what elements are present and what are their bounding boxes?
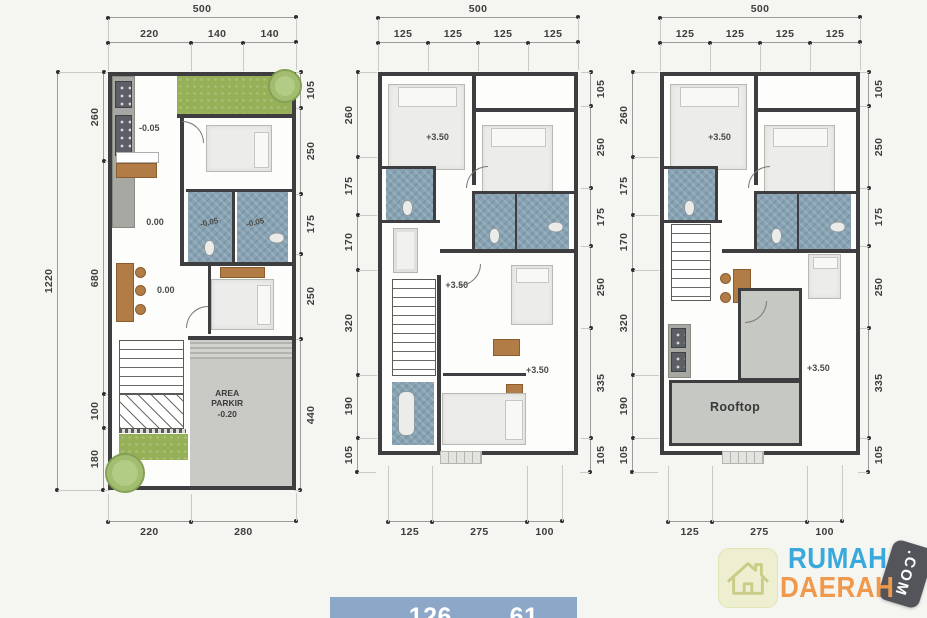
area1-value: 126 (409, 603, 452, 618)
dim-label: 500 (193, 3, 211, 15)
dim-segment: 100 (103, 394, 104, 428)
bar-shelf (116, 163, 157, 178)
sink-icon (671, 352, 686, 372)
dining-table (116, 263, 134, 322)
toilet-icon (204, 240, 215, 256)
dim-segment: 250 (868, 246, 869, 328)
dim-label: 175 (618, 177, 630, 195)
dim-segment: 140 (243, 42, 296, 43)
logo-com-text: .COM (891, 549, 921, 599)
dim-label: 220 (140, 28, 158, 40)
dim-segment: 280 (191, 521, 296, 522)
dim-segment: 500 (108, 17, 296, 18)
kitchen-counter (668, 324, 691, 378)
wardrobe (220, 267, 265, 278)
level-label: -0.05 (139, 123, 160, 133)
dim-label: 250 (305, 287, 317, 305)
parking-gate-texture (190, 341, 292, 359)
dim-segment: 440 (300, 339, 301, 490)
dim-segment: 125 (478, 42, 528, 43)
plan3-building: +3.50 Rooftop +3.50 (660, 72, 860, 455)
stairs (392, 279, 436, 377)
dim-label: 500 (469, 3, 487, 15)
tree-icon (268, 69, 302, 103)
toilet-icon (830, 222, 846, 233)
wall (722, 249, 856, 253)
toilet-icon (489, 228, 500, 244)
dim-segment: 175 (357, 157, 358, 214)
dim-segment: 260 (357, 72, 358, 157)
logo-badge (718, 548, 778, 608)
dim-label: 335 (873, 373, 885, 391)
dim-label: 105 (595, 80, 607, 98)
bed (442, 393, 526, 445)
sofa (393, 228, 418, 273)
dim-label: 500 (751, 3, 769, 15)
dim-label: 175 (343, 177, 355, 195)
rooftop-label: Rooftop (700, 400, 769, 414)
dim-label: 140 (260, 28, 278, 40)
wall (433, 166, 436, 222)
dim-label: 175 (305, 214, 317, 232)
dim-segment: 335 (590, 328, 591, 438)
dim-segment: 320 (357, 270, 358, 375)
tree-icon (105, 453, 145, 493)
dim-label: 125 (826, 28, 844, 40)
dim-label: 125 (494, 28, 512, 40)
bed (670, 84, 747, 170)
rumah-daerah-logo: RUMAH DAERAH .COM (718, 545, 927, 617)
dim-segment: 140 (191, 42, 244, 43)
dim-label: 250 (873, 278, 885, 296)
dim-segment: 125 (810, 42, 860, 43)
carport-gate (119, 429, 186, 433)
dim-label: 175 (873, 208, 885, 226)
wardrobe (493, 339, 520, 357)
dim-segment: 125 (378, 42, 428, 43)
stove-icon (671, 328, 686, 348)
dim-segment: 190 (357, 375, 358, 437)
dim-label: 250 (595, 278, 607, 296)
floorplan-sheet: 500 220 140 140 1220 260 680 100 180 105… (0, 0, 927, 618)
dim-label: 260 (618, 105, 630, 123)
level-label: 0.00 (157, 285, 175, 295)
parking-label-line3: -0.20 (202, 409, 252, 420)
dim-label: 190 (343, 397, 355, 415)
dim-label: 175 (595, 208, 607, 226)
plan1-building: -0.05 -0.05 -0.05 0.00 0.00 AREA PARKIR … (108, 72, 296, 490)
dim-segment: 105 (357, 438, 358, 472)
dim-segment: 1220 (57, 72, 58, 490)
dim-segment: 275 (712, 521, 808, 522)
dim-segment: 500 (660, 17, 860, 18)
door-arc (186, 306, 208, 328)
bathroom (392, 382, 434, 446)
bathroom (386, 169, 433, 220)
bathroom (757, 194, 797, 250)
dim-label: 190 (618, 397, 630, 415)
dim-segment: 220 (108, 42, 191, 43)
toilet-icon (269, 233, 285, 244)
dim-segment: 335 (868, 328, 869, 438)
wall (443, 373, 526, 376)
dim-label: 125 (676, 28, 694, 40)
dim-label: 680 (89, 268, 101, 286)
dim-label: 280 (234, 526, 252, 538)
dim-label: 100 (89, 402, 101, 420)
bathroom: -0.05 (237, 192, 288, 262)
dim-segment: 170 (357, 215, 358, 271)
wall (208, 262, 211, 334)
dim-label: 170 (618, 233, 630, 251)
dim-label: 100 (535, 526, 553, 538)
stool (135, 304, 146, 315)
wall (754, 108, 856, 112)
dim-segment: 125 (528, 42, 578, 43)
dim-label: 105 (618, 446, 630, 464)
level-label: +3.50 (526, 365, 549, 375)
wall (180, 262, 293, 266)
stool (135, 285, 146, 296)
bed (511, 265, 553, 325)
door-arc (748, 166, 770, 188)
dim-label: 140 (208, 28, 226, 40)
dim-label: 170 (343, 233, 355, 251)
dim-label: 320 (343, 314, 355, 332)
dim-segment: 125 (668, 521, 712, 522)
dim-label: 260 (343, 105, 355, 123)
dim-segment: 680 (103, 161, 104, 394)
counter-bar (116, 152, 159, 163)
dim-label: 220 (140, 526, 158, 538)
stool (720, 273, 731, 284)
dim-label: 125 (401, 526, 419, 538)
dim-label: 105 (343, 446, 355, 464)
dim-label: 125 (394, 28, 412, 40)
level-label: +3.50 (708, 132, 731, 142)
dim-label: 105 (595, 446, 607, 464)
dim-segment: 180 (103, 428, 104, 490)
dim-label: 275 (750, 526, 768, 538)
level-label: -0.05 (199, 217, 219, 230)
dim-segment: 220 (108, 521, 191, 522)
wall (177, 114, 292, 118)
dim-segment: 125 (388, 521, 432, 522)
dim-segment: 250 (868, 106, 869, 188)
stairs (671, 224, 711, 301)
stairs-under (119, 394, 184, 429)
dim-label: 1220 (43, 269, 55, 294)
bed (808, 254, 841, 299)
dim-label: 125 (776, 28, 794, 40)
fridge-icon (115, 81, 132, 108)
dim-segment: 250 (300, 254, 301, 340)
dim-segment: 105 (590, 72, 591, 106)
dim-segment: 125 (428, 42, 478, 43)
bed (206, 125, 273, 172)
wall (232, 189, 235, 263)
dim-segment: 260 (103, 72, 104, 161)
logo-word-daerah: DAERAH (780, 572, 894, 605)
dim-label: 250 (595, 138, 607, 156)
bed (388, 84, 465, 170)
dim-label: 125 (726, 28, 744, 40)
level-label: -0.05 (246, 217, 266, 230)
dim-label: 440 (305, 405, 317, 423)
dim-label: 275 (470, 526, 488, 538)
bathroom: -0.05 (188, 192, 232, 262)
bathroom (475, 194, 515, 250)
area2-value: 61 (510, 603, 539, 618)
dim-segment: 320 (632, 270, 633, 375)
dim-label: 180 (89, 450, 101, 468)
dim-segment: 190 (632, 375, 633, 437)
door-arc (466, 166, 488, 188)
wall (715, 166, 718, 222)
dim-label: 335 (595, 373, 607, 391)
dim-label: 105 (305, 81, 317, 99)
dim-segment: 175 (868, 188, 869, 245)
dim-label: 250 (305, 142, 317, 160)
area-banner: Luas 126 Luas 61 (330, 597, 577, 618)
dim-label: 125 (444, 28, 462, 40)
dim-label: 260 (89, 107, 101, 125)
parking-label-line1: AREA (202, 388, 252, 399)
dim-segment: 175 (632, 157, 633, 214)
door-arc (459, 264, 481, 286)
dim-segment: 105 (590, 438, 591, 472)
door-arc (182, 121, 204, 143)
parking-label: AREA PARKIR -0.20 (202, 388, 252, 420)
wall (437, 275, 441, 451)
stool (135, 267, 146, 278)
stove-icon (115, 115, 132, 156)
wall (440, 249, 574, 253)
dim-segment: 125 (760, 42, 810, 43)
dim-segment: 250 (300, 108, 301, 194)
dim-label: 105 (873, 80, 885, 98)
dim-segment: 500 (378, 17, 578, 18)
level-label: +3.50 (426, 132, 449, 142)
stairs (119, 340, 184, 393)
dim-segment: 170 (632, 215, 633, 271)
dim-segment: 260 (632, 72, 633, 157)
dim-segment: 175 (300, 194, 301, 254)
dim-label: 105 (873, 446, 885, 464)
plan2-building: +3.50 +3.50 +3.50 (378, 72, 578, 455)
dim-label: 100 (815, 526, 833, 538)
dim-segment: 105 (868, 72, 869, 106)
dim-segment: 275 (432, 521, 528, 522)
toilet-icon (548, 222, 564, 233)
dim-segment: 250 (590, 246, 591, 328)
level-label: +3.50 (807, 363, 830, 373)
bathroom (517, 194, 569, 250)
level-label: 0.00 (146, 217, 164, 227)
bathroom (668, 169, 715, 220)
toilet-icon (684, 200, 695, 216)
dim-label: 125 (544, 28, 562, 40)
bathroom (799, 194, 851, 250)
dim-segment: 175 (590, 188, 591, 245)
dim-segment: 105 (868, 438, 869, 472)
entry-steps (722, 451, 764, 464)
dim-segment: 100 (527, 521, 562, 522)
dim-segment: 125 (660, 42, 710, 43)
dim-segment: 125 (710, 42, 760, 43)
wall (472, 108, 574, 112)
dim-segment: 250 (590, 106, 591, 188)
toilet-icon (402, 200, 413, 216)
entry-steps (440, 451, 482, 464)
dim-label: 250 (873, 138, 885, 156)
dim-label: 125 (681, 526, 699, 538)
dim-segment: 105 (632, 438, 633, 472)
dim-segment: 100 (807, 521, 842, 522)
stool (720, 292, 731, 303)
bed (211, 279, 274, 330)
parking-label-line2: PARKIR (202, 398, 252, 409)
bathtub-icon (398, 391, 415, 436)
toilet-icon (771, 228, 782, 244)
wall (664, 220, 722, 223)
wall (382, 220, 440, 223)
dim-label: 320 (618, 314, 630, 332)
house-icon (725, 555, 771, 601)
